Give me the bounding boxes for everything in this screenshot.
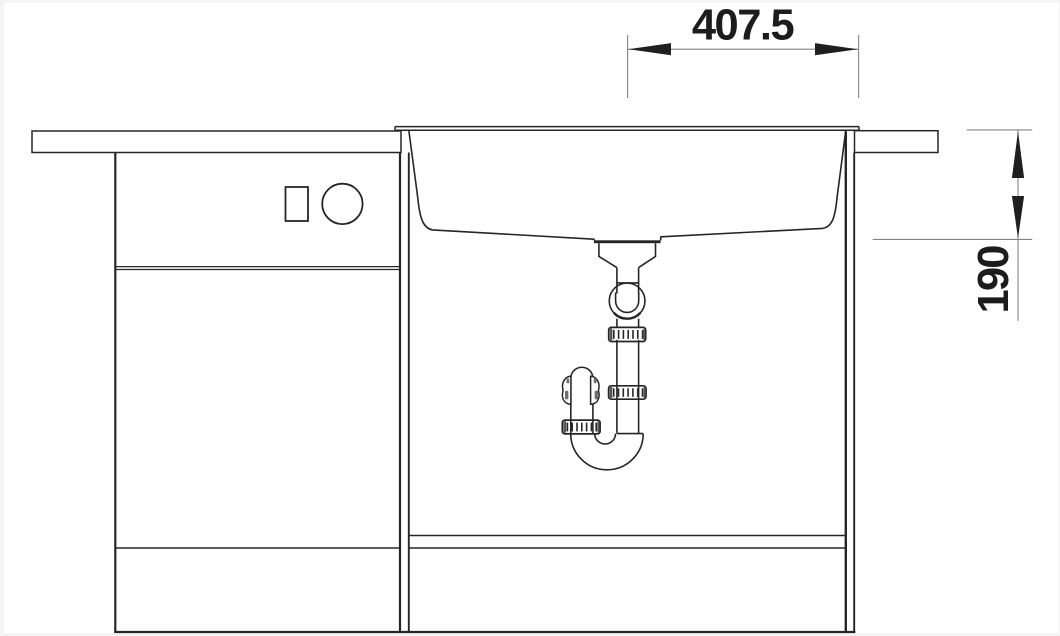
- svg-text:190: 190: [970, 246, 1018, 314]
- svg-text:407.5: 407.5: [692, 2, 794, 50]
